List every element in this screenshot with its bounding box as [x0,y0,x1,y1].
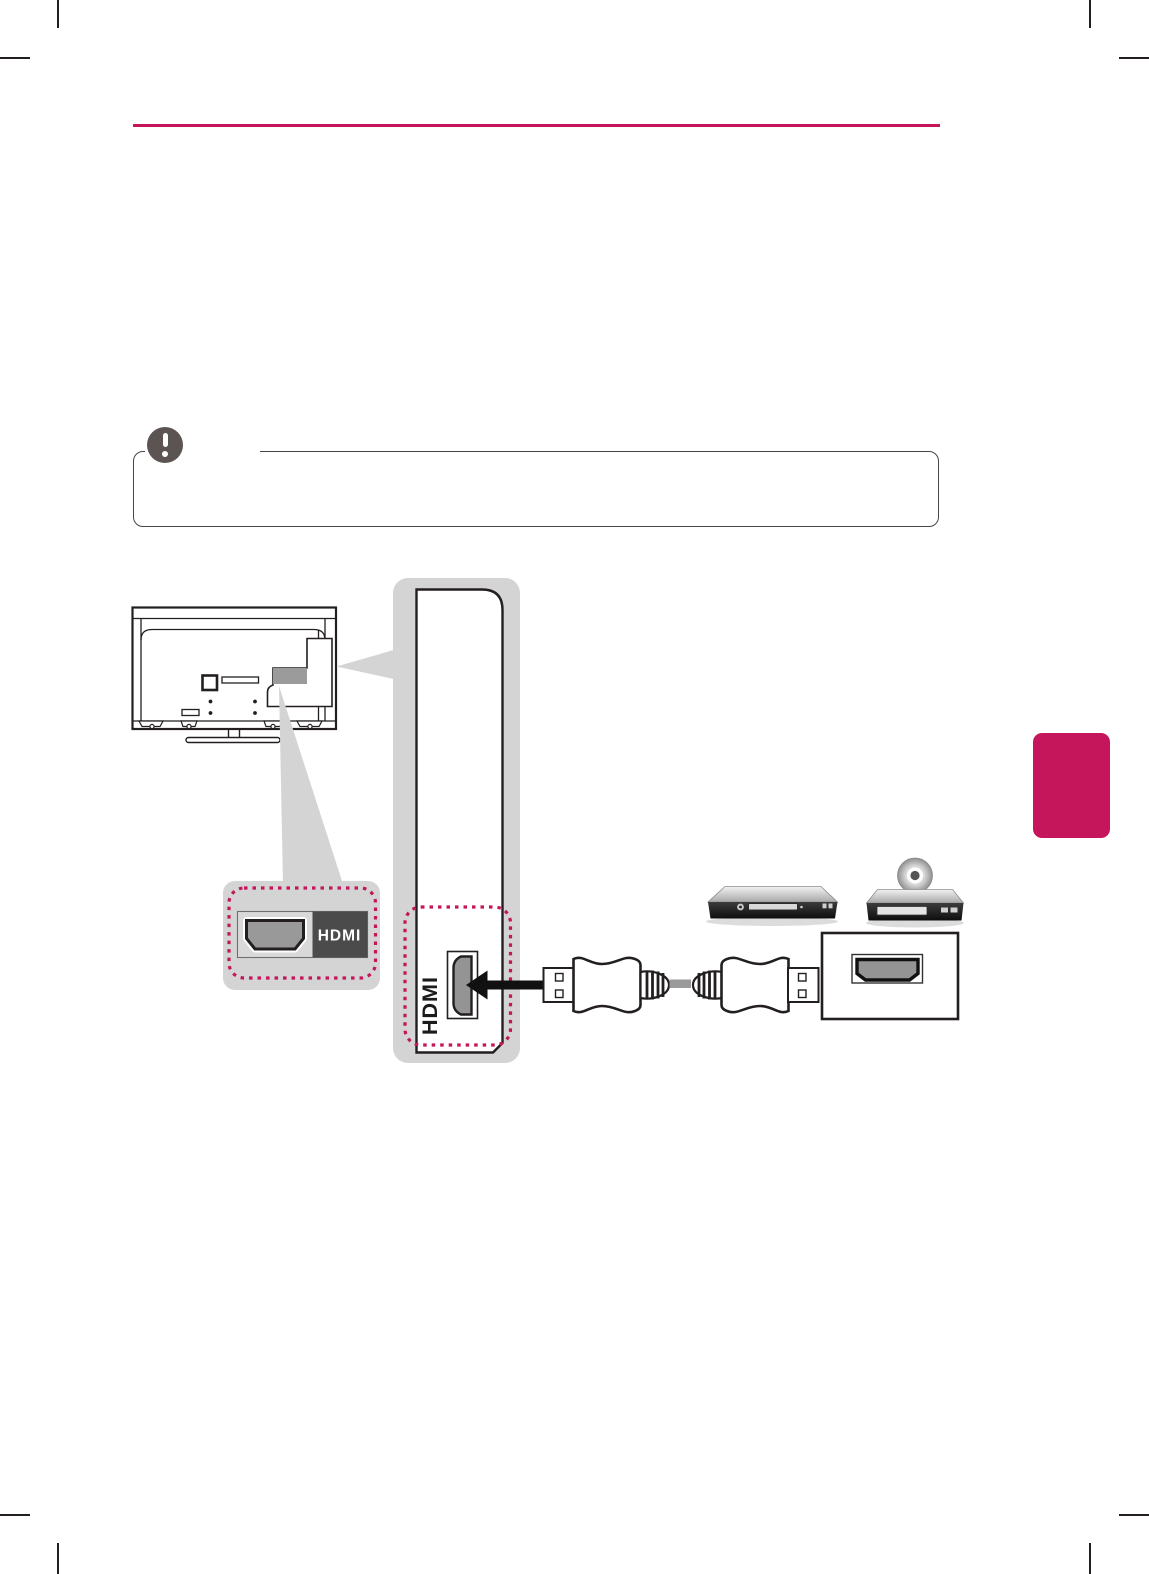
hdmi-port-detail-callout: HDMI [223,881,380,990]
hdmi-connection-diagram: HDMI HDMI [0,0,1149,1574]
device-hdmi-port-box [822,933,958,1019]
manual-page: HDMI HDMI [0,0,1149,1574]
source-devices [706,858,964,928]
tv-stand [186,730,280,743]
cable-middle [670,980,692,989]
tv-hdmi-area-highlight [273,668,307,684]
tv-rear-connector [203,676,218,691]
tv-rear-view-icon [133,608,337,743]
hdmi-port-icon [247,921,304,950]
set-top-box-icon [708,887,838,919]
tv-rear-vent-slot [222,677,259,683]
device-hdmi-port-icon [857,960,918,981]
disc-player-icon [867,858,964,921]
panel-hdmi-label: HDMI [418,976,442,1035]
hdmi-badge-label: HDMI [318,928,362,945]
tv-rear-slot [182,710,199,716]
hdmi-cable-icon [544,958,819,1012]
